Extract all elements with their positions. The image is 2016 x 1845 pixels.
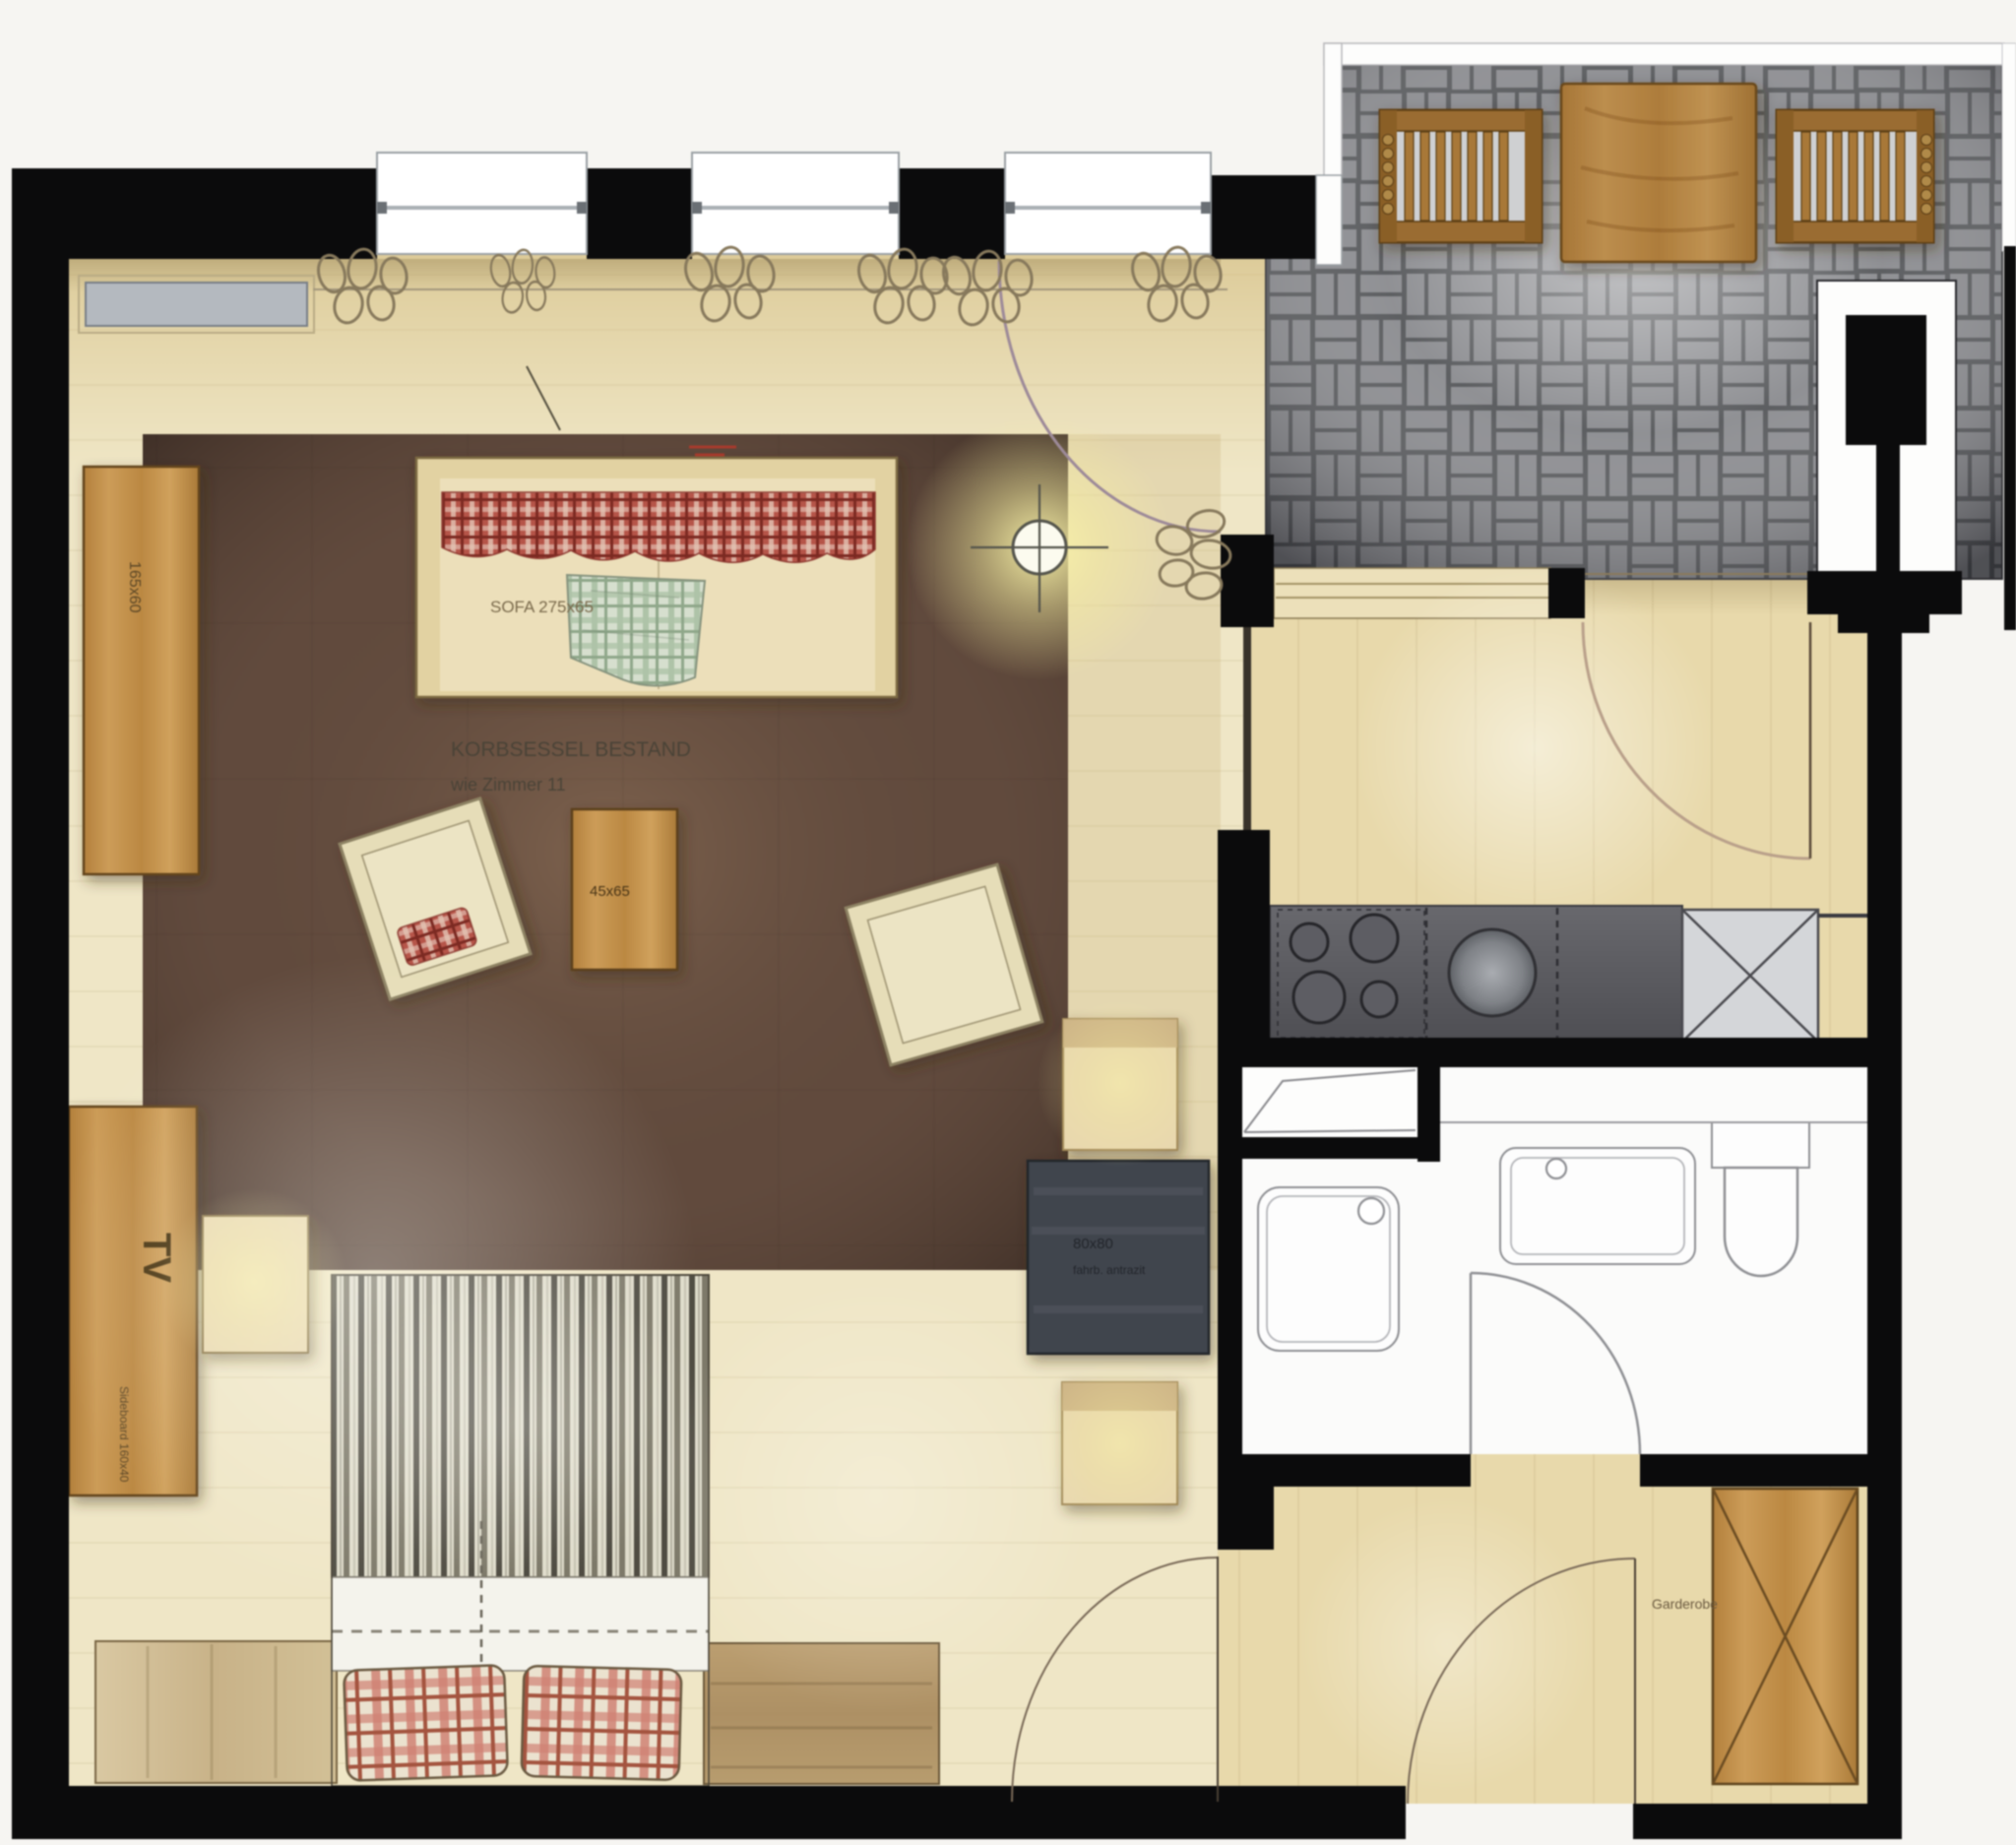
svg-text:165x60: 165x60 <box>126 561 143 613</box>
svg-text:Garderobe: Garderobe <box>1652 1596 1718 1612</box>
svg-text:45x65: 45x65 <box>590 883 630 900</box>
svg-text:fahrb. antrazit: fahrb. antrazit <box>1073 1263 1146 1277</box>
svg-text:SOFA 275x65: SOFA 275x65 <box>490 598 594 616</box>
svg-text:wie Zimmer 11: wie Zimmer 11 <box>450 775 566 795</box>
svg-text:80x80: 80x80 <box>1073 1236 1113 1252</box>
svg-text:KORBSESSEL BESTAND: KORBSESSEL BESTAND <box>451 738 691 761</box>
